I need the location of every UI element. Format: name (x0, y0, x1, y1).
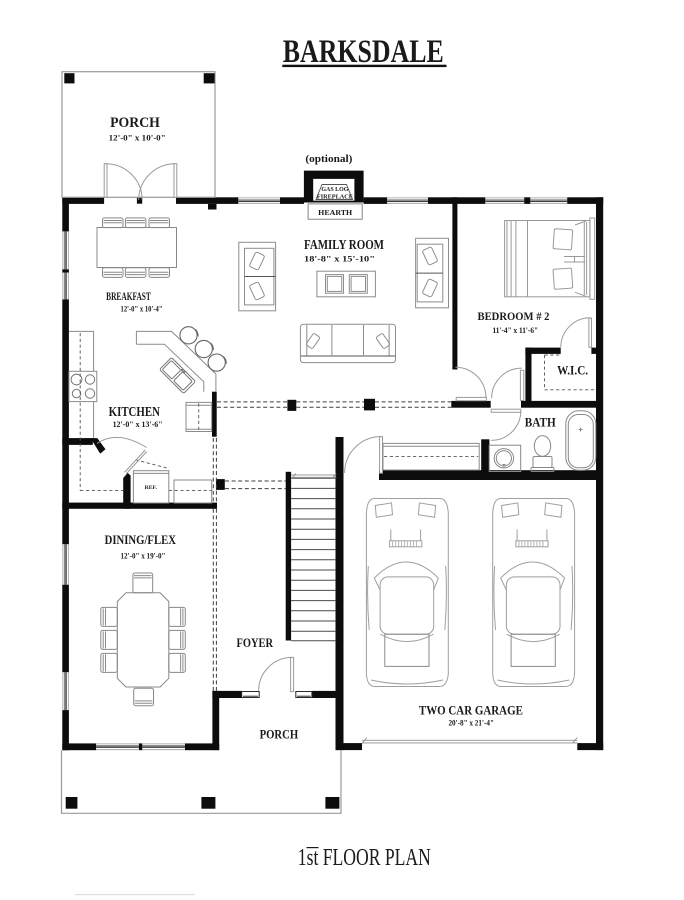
svg-text:12'-0" x 10'-4": 12'-0" x 10'-4" (121, 305, 163, 314)
svg-text:REF.: REF. (145, 485, 158, 491)
svg-text:18'-8" x 15'-10": 18'-8" x 15'-10" (304, 255, 375, 264)
svg-text:12'-0" x 10'-0": 12'-0" x 10'-0" (109, 134, 166, 143)
svg-text:BEDROOM # 2: BEDROOM # 2 (478, 309, 550, 323)
svg-text:W.I.C.: W.I.C. (557, 364, 588, 378)
svg-text:PORCH: PORCH (260, 727, 299, 741)
svg-text:BREAKFAST: BREAKFAST (106, 289, 151, 303)
svg-text:PORCH: PORCH (110, 115, 160, 131)
svg-text:KITCHEN: KITCHEN (109, 405, 160, 420)
svg-text:12'-0" x 19'-0": 12'-0" x 19'-0" (121, 552, 166, 561)
svg-text:1st FLOOR PLAN: 1st FLOOR PLAN (298, 845, 431, 871)
svg-text:HEARTH: HEARTH (318, 208, 352, 217)
svg-text:DINING/FLEX: DINING/FLEX (105, 532, 177, 547)
svg-text:GAS LOG: GAS LOG (321, 186, 348, 193)
svg-text:FAMILY ROOM: FAMILY ROOM (304, 237, 384, 252)
svg-text:TWO CAR GARAGE: TWO CAR GARAGE (419, 703, 523, 718)
svg-text:20'-8" x 21'-4": 20'-8" x 21'-4" (448, 718, 494, 727)
svg-text:BATH: BATH (525, 414, 556, 429)
svg-text:BARKSDALE: BARKSDALE (283, 34, 444, 70)
svg-text:(optional): (optional) (305, 153, 352, 165)
svg-text:12'-0" x 13'-6": 12'-0" x 13'-6" (113, 420, 163, 429)
svg-text:FOYER: FOYER (237, 635, 274, 650)
svg-text:FIREPLACE: FIREPLACE (317, 193, 353, 200)
svg-text:11'-4" x 11'-6": 11'-4" x 11'-6" (493, 326, 539, 335)
